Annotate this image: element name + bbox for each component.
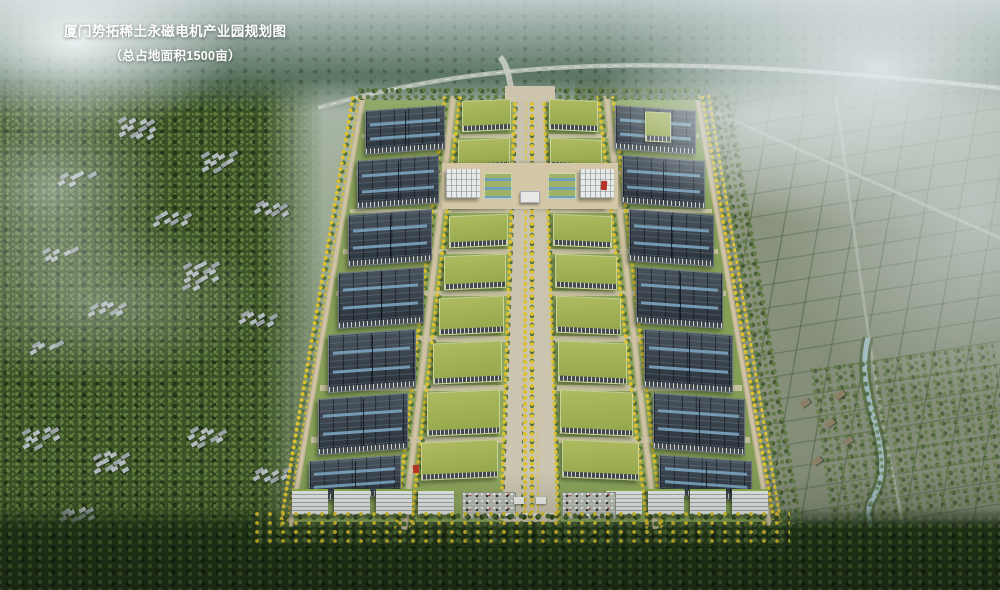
pv-roof-factory <box>636 267 723 329</box>
pv-roof-factory <box>348 209 432 267</box>
south-tree-band <box>255 512 790 546</box>
pv-roof-seam <box>398 161 399 203</box>
pv-roof-seam <box>381 273 382 323</box>
green-roof-factory <box>439 296 504 336</box>
green-roof-factory <box>645 111 671 142</box>
pv-roof-factory <box>622 155 705 209</box>
green-roof-factory <box>427 389 500 436</box>
industrial-park <box>0 0 1000 590</box>
pv-roof-seam <box>390 215 391 261</box>
pv-roof-factory <box>653 393 745 455</box>
north-entrance-plaza <box>505 86 555 102</box>
factory-facade <box>463 124 510 131</box>
pv-roof-seam <box>372 335 373 387</box>
pv-roof-seam <box>680 273 681 323</box>
pv-roof-seam <box>671 215 672 261</box>
pv-roof-seam <box>698 399 699 449</box>
pv-roof-factory <box>318 393 408 455</box>
plan-subtitle: （总占地面积1500亩） <box>64 45 286 68</box>
pv-roof-factory <box>328 329 416 393</box>
green-roof-factory <box>556 296 621 336</box>
green-roof-factory <box>558 340 627 384</box>
main-gate-post <box>514 497 524 504</box>
main-gate-post <box>536 497 546 504</box>
pv-roof-factory <box>629 209 714 267</box>
courtyard-pools <box>484 173 512 199</box>
green-roof-factory <box>560 389 633 436</box>
green-roof-factory <box>433 340 502 384</box>
plan-title: 厦门势拓稀土永磁电机产业园规划图 <box>64 20 286 45</box>
pv-roof-factory <box>338 267 424 329</box>
factory-facade <box>554 240 611 247</box>
pv-roof-seam <box>689 335 690 387</box>
green-roof-factory <box>449 214 508 249</box>
pv-roof-factory <box>357 155 439 209</box>
factory-facade <box>450 240 507 247</box>
pv-roof-seam <box>405 111 406 150</box>
green-roof-factory <box>462 99 511 132</box>
green-roof-factory <box>444 254 506 291</box>
green-roof-factory <box>555 254 617 291</box>
axis-pavilion <box>520 191 540 203</box>
courtyard-pools <box>548 173 576 199</box>
factory-facade <box>646 135 670 141</box>
pv-roof-seam <box>363 399 364 449</box>
factory-facade <box>550 124 597 131</box>
green-roof-factory <box>562 439 639 480</box>
green-roof-factory <box>553 214 612 249</box>
red-accent-building <box>601 181 608 190</box>
pv-roof-seam <box>663 161 664 203</box>
admin-building <box>446 169 480 198</box>
red-accent-building <box>413 465 420 473</box>
aerial-masterplan-rendering: 厦门势拓稀土永磁电机产业园规划图 （总占地面积1500亩） <box>0 0 1000 590</box>
green-roof-factory <box>421 439 498 480</box>
pv-roof-factory <box>644 329 733 393</box>
admin-building <box>580 169 614 198</box>
green-roof-factory <box>549 99 598 132</box>
title-block: 厦门势拓稀土永磁电机产业园规划图 （总占地面积1500亩） <box>64 20 286 68</box>
pv-roof-factory <box>365 105 445 155</box>
